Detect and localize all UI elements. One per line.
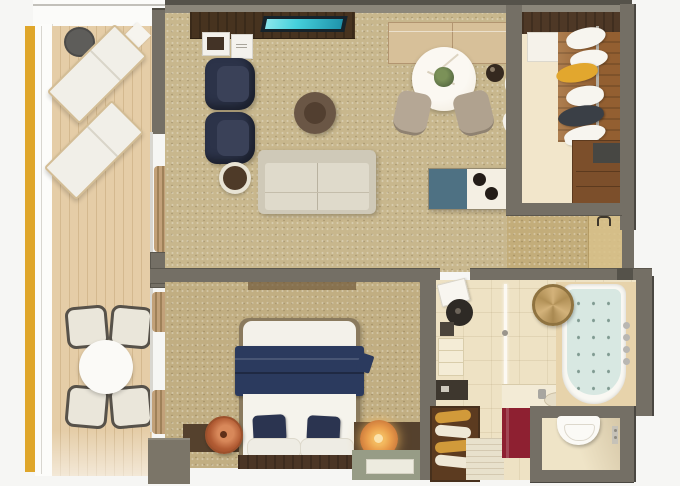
vanity-faucet	[538, 389, 546, 399]
tub-fixtures	[620, 322, 634, 376]
wall-closet-right	[620, 4, 636, 230]
towel-row-1	[435, 409, 472, 424]
guest-card	[231, 34, 253, 59]
shower-floor	[466, 438, 504, 480]
minibar-glass-1	[473, 173, 486, 186]
closet-top-shelf	[522, 12, 620, 34]
bed-blanket	[235, 346, 364, 396]
wall-toilet-bottom	[530, 470, 634, 483]
headboard	[238, 455, 360, 469]
closet-dresser	[572, 140, 624, 204]
entry-console-dark	[436, 380, 468, 400]
bedroom-runner-shadow	[248, 282, 356, 290]
floor-plan-canvas	[0, 0, 680, 486]
tv	[260, 16, 347, 32]
living-side-table	[219, 162, 251, 194]
ice-bucket	[486, 64, 504, 82]
closet-cabinet	[527, 32, 561, 62]
armchair-1	[205, 58, 255, 110]
minibar-cabinet	[428, 168, 508, 210]
wall-corridor-right	[622, 215, 634, 270]
shelf-niche	[438, 338, 464, 376]
minibar-glass-2	[485, 187, 498, 200]
table-lamp-left	[205, 416, 243, 454]
balcony-table	[79, 340, 133, 394]
minibar-teal-top	[429, 169, 467, 209]
table-plant	[434, 67, 454, 87]
sofa	[258, 150, 376, 214]
bedroom-desk	[352, 450, 430, 480]
ottoman	[294, 92, 336, 134]
woven-basket	[532, 284, 574, 326]
dresser-top-panel	[593, 143, 620, 163]
balcony-top-rail	[33, 4, 170, 6]
glass-door-frame-living	[150, 132, 153, 252]
wall-closet-bottom	[506, 203, 634, 216]
tv-screen	[265, 19, 343, 29]
wall-stub-bottom-left	[148, 438, 190, 484]
armchair-2	[205, 112, 255, 164]
wall-cabinet-dark	[440, 322, 454, 336]
wall-closet-left	[506, 5, 522, 213]
shower-handle	[502, 330, 508, 336]
balcony-rail-line	[41, 26, 42, 474]
balcony-deck-fade	[52, 430, 152, 476]
bathtub-water	[567, 289, 621, 395]
towel-row-2	[435, 424, 472, 438]
wall-tub-right	[636, 276, 654, 416]
desk-tray	[366, 459, 414, 474]
picture-tray	[202, 32, 230, 56]
flush-plate	[612, 426, 618, 444]
entrance-door-handle	[597, 216, 611, 226]
